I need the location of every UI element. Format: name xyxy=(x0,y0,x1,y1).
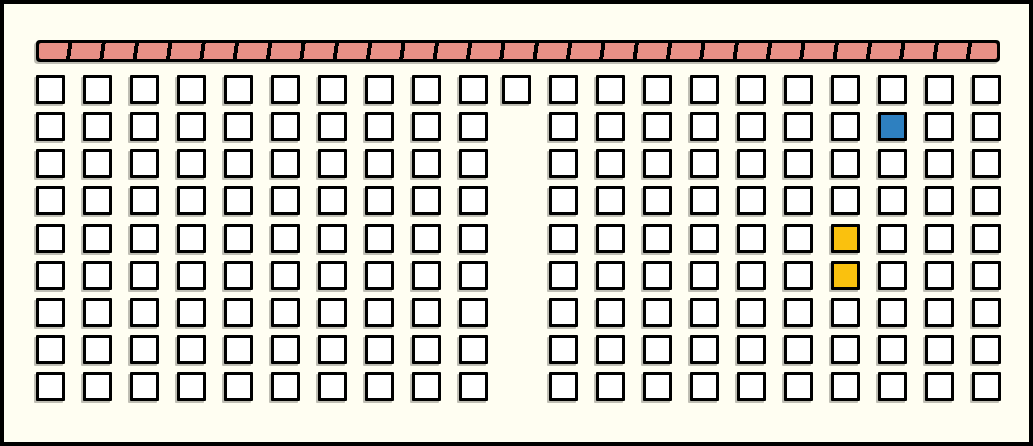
grid-cell[interactable] xyxy=(459,335,488,364)
grid-cell[interactable] xyxy=(737,372,766,401)
grid-cell[interactable] xyxy=(130,186,159,215)
grid-cell[interactable] xyxy=(690,112,719,141)
grid-cell[interactable] xyxy=(878,186,907,215)
grid-cell[interactable] xyxy=(690,186,719,215)
grid-cell[interactable] xyxy=(831,298,860,327)
grid-cell[interactable] xyxy=(690,298,719,327)
grid-cell[interactable] xyxy=(972,75,1001,104)
grid-cell[interactable] xyxy=(271,261,300,290)
grid-cell[interactable] xyxy=(365,224,394,253)
grid-cell[interactable] xyxy=(459,186,488,215)
grid-cell[interactable] xyxy=(271,224,300,253)
grid-cell[interactable] xyxy=(596,149,625,178)
grid-cell[interactable] xyxy=(365,112,394,141)
seat-grid xyxy=(4,4,1029,442)
grid-cell[interactable] xyxy=(784,112,813,141)
grid-cell[interactable] xyxy=(365,298,394,327)
grid-cell[interactable] xyxy=(831,75,860,104)
grid-cell[interactable] xyxy=(596,335,625,364)
grid-cell[interactable] xyxy=(925,75,954,104)
grid-cell[interactable] xyxy=(318,186,347,215)
grid-cell[interactable] xyxy=(925,372,954,401)
grid-cell[interactable] xyxy=(596,298,625,327)
grid-cell[interactable] xyxy=(596,112,625,141)
grid-cell[interactable] xyxy=(502,75,531,104)
grid-cell[interactable] xyxy=(83,186,112,215)
grid-cell[interactable] xyxy=(318,335,347,364)
grid-cell[interactable] xyxy=(690,224,719,253)
grid-cell[interactable] xyxy=(130,224,159,253)
grid-cell[interactable] xyxy=(549,149,578,178)
grid-cell[interactable] xyxy=(83,224,112,253)
grid-cell[interactable] xyxy=(878,224,907,253)
grid-cell[interactable] xyxy=(271,112,300,141)
grid-cell[interactable] xyxy=(83,112,112,141)
grid-cell[interactable] xyxy=(690,75,719,104)
grid-cell[interactable] xyxy=(690,335,719,364)
grid-cell[interactable] xyxy=(224,372,253,401)
grid-cell[interactable] xyxy=(36,298,65,327)
grid-cell[interactable] xyxy=(36,335,65,364)
grid-cell[interactable] xyxy=(784,149,813,178)
grid-cell[interactable] xyxy=(549,335,578,364)
grid-cell[interactable] xyxy=(318,298,347,327)
grid-cell[interactable] xyxy=(784,261,813,290)
grid-cell[interactable] xyxy=(412,224,441,253)
diagram-frame xyxy=(0,0,1033,446)
grid-cell[interactable] xyxy=(36,149,65,178)
grid-cell[interactable] xyxy=(412,261,441,290)
grid-cell[interactable] xyxy=(643,261,672,290)
grid-cell[interactable] xyxy=(596,75,625,104)
grid-cell[interactable] xyxy=(130,298,159,327)
grid-cell[interactable] xyxy=(224,224,253,253)
grid-cell[interactable] xyxy=(737,261,766,290)
grid-cell[interactable] xyxy=(737,186,766,215)
grid-cell[interactable] xyxy=(784,75,813,104)
grid-cell[interactable] xyxy=(83,261,112,290)
grid-cell[interactable] xyxy=(925,224,954,253)
grid-cell[interactable] xyxy=(36,224,65,253)
grid-cell[interactable] xyxy=(972,186,1001,215)
grid-cell[interactable] xyxy=(831,112,860,141)
grid-cell[interactable] xyxy=(831,372,860,401)
grid-cell[interactable] xyxy=(412,75,441,104)
grid-cell[interactable] xyxy=(737,149,766,178)
grid-cell[interactable] xyxy=(177,335,206,364)
grid-cell[interactable] xyxy=(130,372,159,401)
grid-cell[interactable] xyxy=(737,224,766,253)
grid-cell[interactable] xyxy=(365,372,394,401)
grid-cell[interactable] xyxy=(36,372,65,401)
grid-cell[interactable] xyxy=(36,75,65,104)
grid-cell[interactable] xyxy=(690,261,719,290)
grid-cell[interactable] xyxy=(459,298,488,327)
grid-cell[interactable] xyxy=(643,298,672,327)
grid-cell[interactable] xyxy=(690,149,719,178)
grid-cell[interactable] xyxy=(412,112,441,141)
grid-cell[interactable] xyxy=(130,149,159,178)
grid-cell[interactable] xyxy=(878,261,907,290)
grid-cell[interactable] xyxy=(643,224,672,253)
grid-cell[interactable] xyxy=(130,261,159,290)
grid-cell[interactable] xyxy=(784,298,813,327)
grid-cell[interactable] xyxy=(972,372,1001,401)
grid-cell[interactable] xyxy=(412,335,441,364)
grid-cell[interactable] xyxy=(925,335,954,364)
grid-cell[interactable] xyxy=(459,372,488,401)
grid-cell[interactable] xyxy=(365,149,394,178)
grid-cell[interactable] xyxy=(459,149,488,178)
grid-cell[interactable] xyxy=(831,261,860,290)
grid-cell[interactable] xyxy=(925,112,954,141)
grid-cell[interactable] xyxy=(831,224,860,253)
grid-cell[interactable] xyxy=(271,149,300,178)
grid-cell[interactable] xyxy=(972,261,1001,290)
grid-cell[interactable] xyxy=(878,149,907,178)
grid-cell[interactable] xyxy=(271,372,300,401)
grid-cell[interactable] xyxy=(925,298,954,327)
grid-cell[interactable] xyxy=(36,261,65,290)
grid-cell[interactable] xyxy=(643,112,672,141)
grid-cell[interactable] xyxy=(925,261,954,290)
grid-cell[interactable] xyxy=(831,335,860,364)
grid-cell[interactable] xyxy=(177,224,206,253)
grid-cell[interactable] xyxy=(596,261,625,290)
grid-cell[interactable] xyxy=(177,261,206,290)
grid-cell[interactable] xyxy=(549,372,578,401)
grid-cell[interactable] xyxy=(690,372,719,401)
grid-cell[interactable] xyxy=(412,298,441,327)
grid-cell[interactable] xyxy=(784,186,813,215)
grid-cell[interactable] xyxy=(643,75,672,104)
grid-cell[interactable] xyxy=(643,149,672,178)
grid-cell[interactable] xyxy=(784,372,813,401)
grid-cell[interactable] xyxy=(972,224,1001,253)
grid-cell[interactable] xyxy=(224,261,253,290)
grid-cell[interactable] xyxy=(972,298,1001,327)
grid-cell[interactable] xyxy=(365,335,394,364)
grid-cell[interactable] xyxy=(549,224,578,253)
grid-cell[interactable] xyxy=(459,261,488,290)
grid-cell[interactable] xyxy=(318,149,347,178)
grid-cell[interactable] xyxy=(737,75,766,104)
grid-cell[interactable] xyxy=(83,149,112,178)
grid-cell[interactable] xyxy=(831,149,860,178)
grid-cell[interactable] xyxy=(177,112,206,141)
grid-cell[interactable] xyxy=(271,335,300,364)
grid-cell[interactable] xyxy=(878,372,907,401)
grid-cell[interactable] xyxy=(596,372,625,401)
grid-cell[interactable] xyxy=(784,224,813,253)
grid-cell[interactable] xyxy=(318,261,347,290)
grid-cell[interactable] xyxy=(596,224,625,253)
grid-cell[interactable] xyxy=(459,112,488,141)
grid-cell[interactable] xyxy=(549,261,578,290)
grid-cell[interactable] xyxy=(878,75,907,104)
grid-cell[interactable] xyxy=(972,335,1001,364)
grid-cell[interactable] xyxy=(412,186,441,215)
grid-cell[interactable] xyxy=(549,186,578,215)
grid-cell[interactable] xyxy=(549,75,578,104)
grid-cell[interactable] xyxy=(831,186,860,215)
grid-cell[interactable] xyxy=(36,112,65,141)
grid-cell[interactable] xyxy=(271,186,300,215)
grid-cell[interactable] xyxy=(878,335,907,364)
grid-cell[interactable] xyxy=(925,186,954,215)
grid-cell[interactable] xyxy=(549,112,578,141)
grid-cell[interactable] xyxy=(130,112,159,141)
grid-cell[interactable] xyxy=(459,75,488,104)
grid-cell[interactable] xyxy=(365,186,394,215)
grid-cell[interactable] xyxy=(972,112,1001,141)
grid-cell[interactable] xyxy=(318,224,347,253)
grid-cell[interactable] xyxy=(130,75,159,104)
grid-cell[interactable] xyxy=(224,186,253,215)
grid-cell[interactable] xyxy=(177,75,206,104)
grid-cell[interactable] xyxy=(271,75,300,104)
grid-cell[interactable] xyxy=(224,149,253,178)
grid-cell[interactable] xyxy=(878,112,907,141)
grid-cell[interactable] xyxy=(177,149,206,178)
grid-cell[interactable] xyxy=(459,224,488,253)
grid-cell[interactable] xyxy=(83,75,112,104)
grid-cell[interactable] xyxy=(224,75,253,104)
grid-cell[interactable] xyxy=(365,75,394,104)
grid-cell[interactable] xyxy=(224,335,253,364)
grid-cell[interactable] xyxy=(36,186,65,215)
grid-cell[interactable] xyxy=(130,335,159,364)
grid-cell[interactable] xyxy=(972,149,1001,178)
grid-cell[interactable] xyxy=(737,112,766,141)
grid-cell[interactable] xyxy=(271,298,300,327)
grid-cell[interactable] xyxy=(83,298,112,327)
grid-cell[interactable] xyxy=(784,335,813,364)
grid-cell[interactable] xyxy=(596,186,625,215)
grid-cell[interactable] xyxy=(643,372,672,401)
grid-cell[interactable] xyxy=(177,298,206,327)
grid-cell[interactable] xyxy=(925,149,954,178)
grid-cell[interactable] xyxy=(365,261,394,290)
grid-cell[interactable] xyxy=(224,298,253,327)
grid-cell[interactable] xyxy=(737,335,766,364)
grid-cell[interactable] xyxy=(737,298,766,327)
grid-cell[interactable] xyxy=(318,112,347,141)
grid-cell[interactable] xyxy=(83,372,112,401)
grid-cell[interactable] xyxy=(643,335,672,364)
grid-cell[interactable] xyxy=(83,335,112,364)
grid-cell[interactable] xyxy=(318,75,347,104)
grid-cell[interactable] xyxy=(412,149,441,178)
grid-cell[interactable] xyxy=(177,372,206,401)
grid-cell[interactable] xyxy=(224,112,253,141)
grid-cell[interactable] xyxy=(177,186,206,215)
grid-cell[interactable] xyxy=(878,298,907,327)
grid-cell[interactable] xyxy=(549,298,578,327)
grid-cell[interactable] xyxy=(643,186,672,215)
grid-cell[interactable] xyxy=(412,372,441,401)
grid-cell[interactable] xyxy=(318,372,347,401)
